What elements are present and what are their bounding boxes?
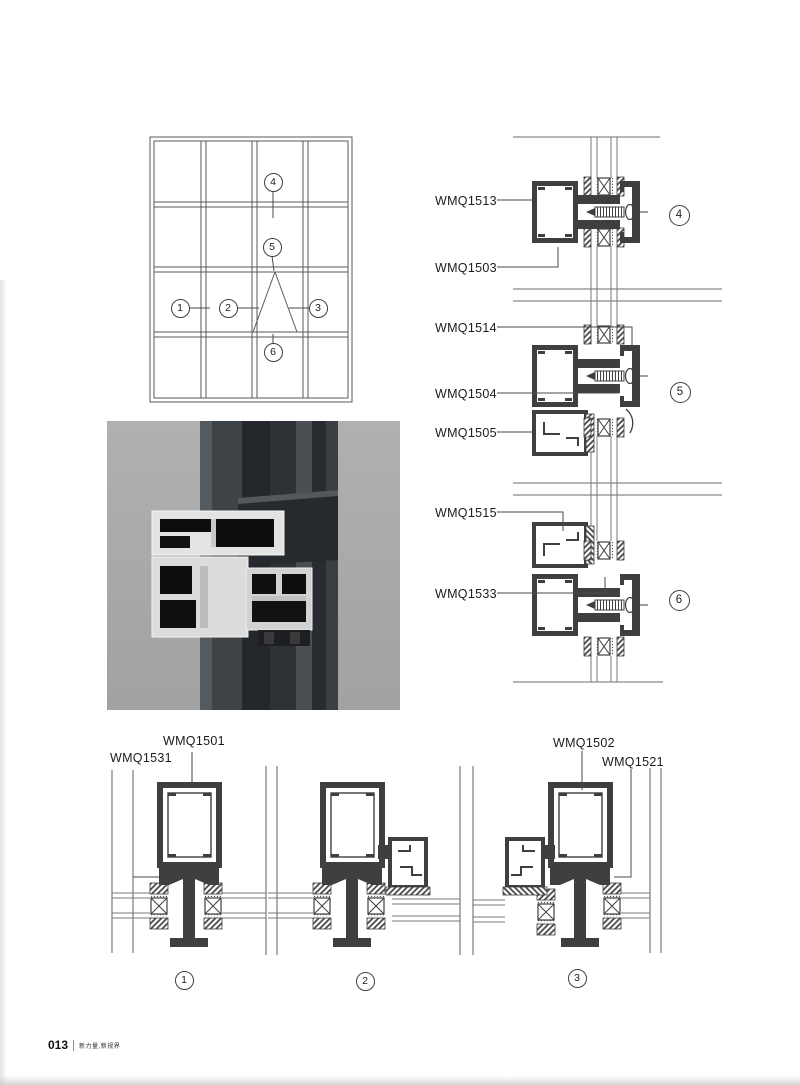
scan-edge-bottom [0, 1076, 800, 1085]
page-footer: 013 新力量,新视界 [48, 1038, 120, 1052]
elevation-callout-5: 5 [263, 238, 282, 257]
part-label-wmq1531: WMQ1531 [110, 751, 172, 765]
plan-section-details [112, 751, 661, 955]
part-label-wmq1503: WMQ1503 [435, 261, 497, 275]
catalog-page: { "labels": { "wmq1513": "WMQ1513", "wmq… [0, 0, 800, 1085]
detail-callout-4: 4 [669, 205, 690, 226]
part-label-wmq1514: WMQ1514 [435, 321, 497, 335]
part-label-wmq1504: WMQ1504 [435, 387, 497, 401]
elevation-callout-1: 1 [171, 299, 190, 318]
part-label-wmq1505: WMQ1505 [435, 426, 497, 440]
part-label-wmq1521: WMQ1521 [602, 755, 664, 769]
section-detail-4 [535, 177, 649, 247]
awning-window-symbol [253, 272, 297, 332]
line-art-layer [0, 0, 800, 1085]
part-label-wmq1515: WMQ1515 [435, 506, 497, 520]
section-detail-5 [534, 325, 648, 454]
elevation-callout-4: 4 [264, 173, 283, 192]
profile-3d-render [107, 421, 400, 710]
part-label-wmq1513: WMQ1513 [435, 194, 497, 208]
detail-callout-3: 3 [568, 969, 587, 988]
elevation-diagram [150, 137, 352, 402]
detail-callout-2: 2 [356, 972, 375, 991]
part-label-wmq1502: WMQ1502 [553, 736, 615, 750]
detail-callout-5: 5 [670, 382, 691, 403]
section-detail-3 [503, 785, 621, 947]
elevation-callout-6: 6 [264, 343, 283, 362]
section-detail-2 [313, 785, 430, 947]
page-number: 013 [48, 1038, 68, 1052]
scan-edge-left [0, 280, 7, 1085]
section-detail-1 [150, 785, 222, 947]
section-detail-6 [534, 524, 648, 656]
detail-callout-1: 1 [175, 971, 194, 990]
elevation-callout-2: 2 [219, 299, 238, 318]
elevation-callout-3: 3 [309, 299, 328, 318]
part-label-wmq1501: WMQ1501 [163, 734, 225, 748]
footer-divider [73, 1040, 74, 1051]
footer-slogan: 新力量,新视界 [79, 1041, 120, 1050]
detail-callout-6: 6 [669, 590, 690, 611]
part-label-wmq1533: WMQ1533 [435, 587, 497, 601]
